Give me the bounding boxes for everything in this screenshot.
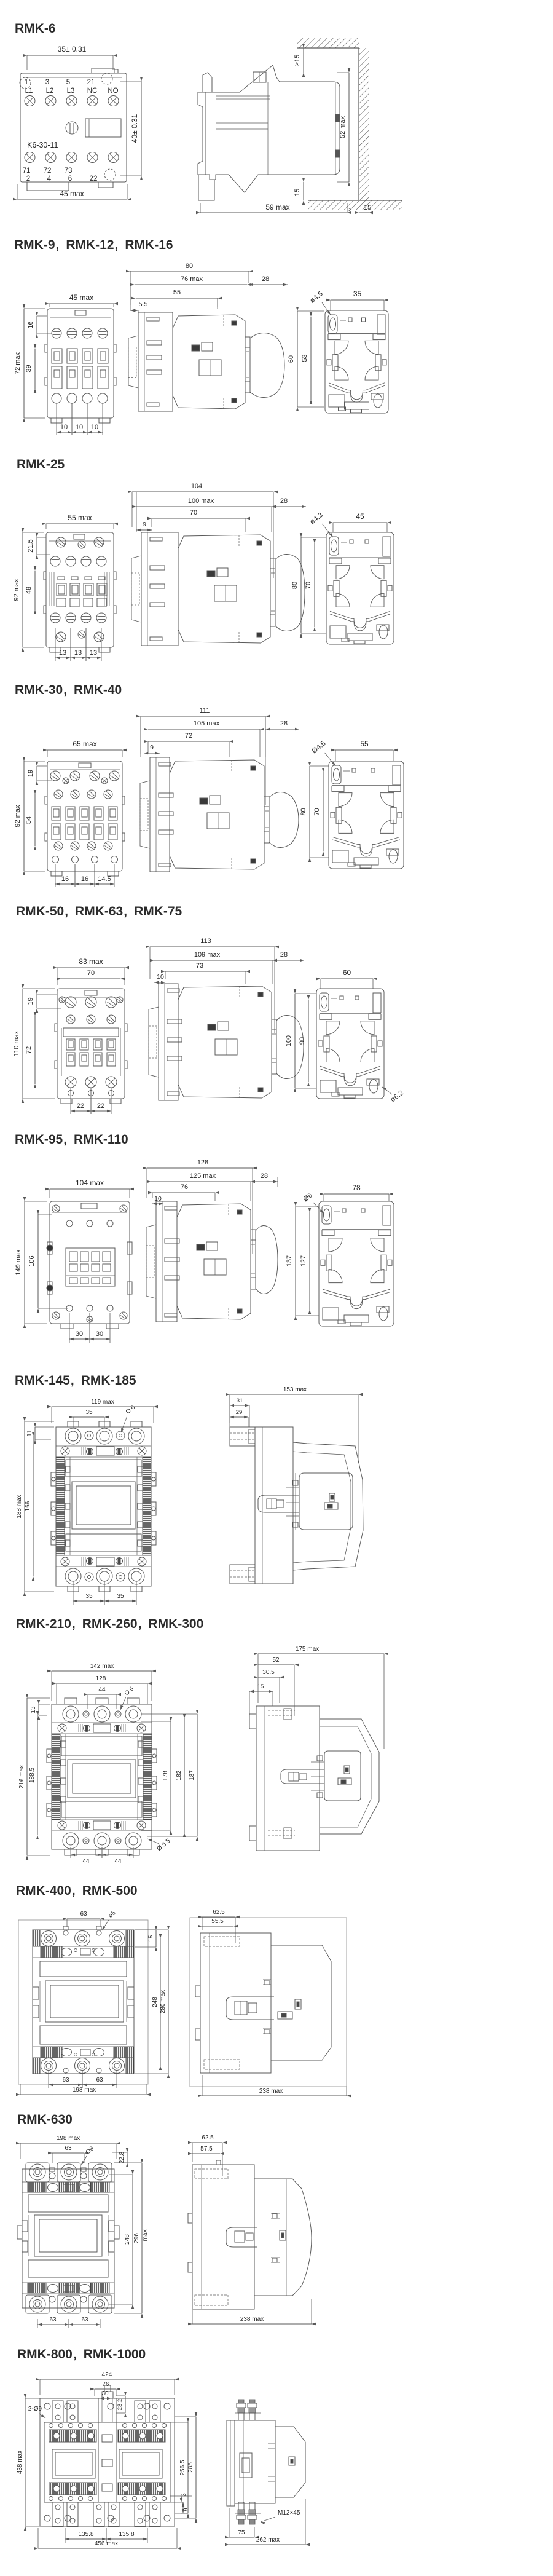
svg-text:10: 10 — [76, 424, 83, 431]
svg-text:35: 35 — [117, 1593, 124, 1600]
svg-text:40± 0.31: 40± 0.31 — [130, 114, 139, 143]
svg-text:21.5: 21.5 — [27, 539, 34, 552]
svg-text:106: 106 — [28, 1255, 36, 1266]
svg-text:153 max: 153 max — [283, 1386, 307, 1393]
svg-text:45 max: 45 max — [69, 293, 93, 302]
svg-text:19: 19 — [27, 997, 34, 1005]
svg-text:100: 100 — [285, 1035, 292, 1046]
svg-text:44: 44 — [98, 1686, 106, 1693]
svg-text:52 max: 52 max — [339, 116, 347, 138]
svg-text:4: 4 — [47, 175, 52, 183]
svg-text:≥15: ≥15 — [294, 55, 301, 66]
svg-text:28: 28 — [261, 1172, 268, 1180]
svg-text:65 max: 65 max — [73, 740, 96, 748]
svg-text:78: 78 — [352, 1183, 361, 1192]
svg-text:28: 28 — [262, 275, 269, 283]
svg-text:456 max: 456 max — [95, 2540, 118, 2547]
svg-text:216 max: 216 max — [18, 1765, 25, 1788]
svg-text:30.5: 30.5 — [262, 1669, 275, 1676]
svg-text:83 max: 83 max — [79, 957, 103, 966]
svg-text:6: 6 — [68, 175, 72, 183]
svg-text:39: 39 — [25, 365, 33, 372]
svg-text:RMK-25: RMK-25 — [17, 457, 65, 472]
svg-text:72: 72 — [185, 732, 192, 740]
svg-text:RMK-210,RMK-260,RMK-300: RMK-210,RMK-260,RMK-300 — [16, 1617, 203, 1631]
svg-text:175 max: 175 max — [296, 1646, 319, 1653]
svg-text:76: 76 — [102, 2381, 109, 2388]
svg-text:238 max: 238 max — [240, 2316, 264, 2323]
svg-text:110 max: 110 max — [13, 1030, 20, 1056]
svg-text:72 max: 72 max — [14, 352, 22, 374]
svg-text:48: 48 — [25, 587, 33, 594]
svg-text:238 max: 238 max — [259, 2088, 283, 2095]
svg-text:RMK-630: RMK-630 — [17, 2112, 73, 2127]
svg-text:22: 22 — [77, 1102, 84, 1110]
svg-text:92 max: 92 max — [13, 579, 20, 601]
svg-text:≥: ≥ — [349, 207, 352, 213]
svg-text:280 max: 280 max — [160, 1990, 167, 2013]
svg-text:10: 10 — [91, 424, 98, 431]
svg-text:10: 10 — [157, 973, 164, 981]
svg-text:182: 182 — [176, 1770, 182, 1780]
svg-text:76 max: 76 max — [181, 275, 203, 283]
svg-text:149 max: 149 max — [15, 1249, 22, 1276]
svg-text:55: 55 — [173, 289, 181, 296]
svg-text:13: 13 — [74, 649, 82, 657]
svg-text:188 max: 188 max — [16, 1495, 23, 1518]
svg-text:K6-30-11: K6-30-11 — [27, 141, 58, 149]
svg-text:15: 15 — [257, 1683, 264, 1690]
svg-text:70: 70 — [305, 582, 312, 589]
svg-text:73: 73 — [65, 167, 73, 175]
svg-text:L3: L3 — [67, 87, 75, 95]
svg-text:92 max: 92 max — [14, 805, 22, 828]
svg-text:296: 296 — [133, 2233, 140, 2243]
svg-text:14.5: 14.5 — [98, 875, 111, 883]
svg-text:71: 71 — [23, 167, 31, 175]
svg-text:15: 15 — [147, 1935, 154, 1942]
svg-text:35: 35 — [353, 290, 362, 298]
svg-text:75: 75 — [238, 2529, 245, 2536]
svg-text:29: 29 — [236, 1409, 243, 1416]
svg-text:198 max: 198 max — [73, 2087, 96, 2093]
svg-text:119 max: 119 max — [91, 1399, 114, 1405]
svg-text:1: 1 — [25, 79, 28, 86]
svg-text:60: 60 — [343, 968, 351, 977]
svg-text:128: 128 — [197, 1159, 208, 1166]
svg-text:60: 60 — [288, 355, 295, 363]
svg-text:55.5: 55.5 — [211, 1918, 224, 1925]
svg-text:max: max — [142, 2230, 149, 2242]
svg-text:44: 44 — [114, 1858, 122, 1865]
svg-text:128: 128 — [96, 1675, 106, 1682]
svg-text:166: 166 — [25, 1501, 31, 1511]
svg-text:44: 44 — [82, 1858, 90, 1865]
svg-text:63: 63 — [81, 2317, 88, 2323]
svg-text:256.5: 256.5 — [179, 2460, 186, 2475]
svg-text:19: 19 — [27, 770, 34, 777]
svg-text:135.8: 135.8 — [78, 2531, 93, 2538]
svg-text:31: 31 — [237, 1397, 243, 1404]
svg-text:22: 22 — [90, 175, 98, 183]
svg-text:63: 63 — [80, 1911, 87, 1918]
svg-text:62.5: 62.5 — [213, 1909, 225, 1916]
svg-text:70: 70 — [190, 509, 197, 516]
svg-text:438 max: 438 max — [17, 2451, 23, 2474]
svg-text:135.8: 135.8 — [119, 2531, 134, 2538]
svg-text:22.8: 22.8 — [119, 2151, 125, 2163]
svg-text:28: 28 — [280, 720, 288, 727]
svg-text:80: 80 — [291, 582, 299, 589]
svg-text:M12×45: M12×45 — [278, 2510, 300, 2516]
svg-text:10: 10 — [60, 424, 68, 431]
svg-text:63: 63 — [96, 2077, 103, 2084]
svg-text:10: 10 — [154, 1195, 162, 1203]
svg-text:111: 111 — [200, 707, 210, 714]
svg-text:70: 70 — [313, 808, 321, 815]
svg-text:125 max: 125 max — [190, 1172, 216, 1180]
svg-text:100 max: 100 max — [188, 497, 214, 505]
svg-text:104: 104 — [191, 483, 202, 490]
svg-text:15: 15 — [294, 189, 301, 196]
svg-text:63: 63 — [65, 2145, 72, 2152]
svg-text:16: 16 — [61, 875, 69, 883]
svg-text:30: 30 — [101, 2390, 109, 2397]
svg-text:16: 16 — [27, 321, 34, 328]
svg-text:13: 13 — [59, 649, 66, 657]
svg-text:11: 11 — [26, 1430, 33, 1437]
svg-text:53: 53 — [301, 354, 308, 362]
svg-text:13: 13 — [30, 1706, 37, 1713]
svg-text:105 max: 105 max — [194, 720, 220, 727]
svg-text:3: 3 — [45, 79, 49, 86]
svg-text:248: 248 — [124, 2234, 131, 2245]
svg-text:NO: NO — [108, 87, 118, 95]
svg-text:62.5: 62.5 — [202, 2135, 214, 2141]
svg-text:72: 72 — [25, 1046, 33, 1054]
svg-text:188.5: 188.5 — [29, 1768, 36, 1783]
svg-text:13: 13 — [90, 649, 97, 657]
svg-text:63: 63 — [49, 2317, 57, 2323]
svg-text:RMK-6: RMK-6 — [15, 22, 56, 36]
svg-text:28: 28 — [280, 951, 288, 958]
svg-text:285: 285 — [187, 2462, 194, 2473]
svg-text:73: 73 — [196, 962, 203, 970]
svg-text:2-Ø9: 2-Ø9 — [28, 2406, 42, 2412]
svg-text:127: 127 — [300, 1255, 307, 1266]
svg-text:35: 35 — [85, 1409, 93, 1416]
svg-text:45 max: 45 max — [60, 189, 84, 198]
svg-text:9: 9 — [150, 744, 154, 751]
svg-text:16: 16 — [81, 875, 88, 883]
svg-text:57.5: 57.5 — [200, 2146, 213, 2152]
svg-text:9: 9 — [182, 2508, 189, 2511]
svg-text:137: 137 — [286, 1255, 293, 1266]
svg-text:3: 3 — [181, 2493, 187, 2496]
svg-text:80: 80 — [186, 263, 193, 270]
svg-text:187: 187 — [189, 1770, 195, 1780]
svg-text:142 max: 142 max — [90, 1663, 114, 1670]
svg-text:59 max: 59 max — [265, 203, 289, 211]
svg-text:178: 178 — [162, 1771, 169, 1781]
svg-text:104 max: 104 max — [76, 1179, 104, 1187]
svg-text:63: 63 — [62, 2077, 69, 2084]
svg-text:424: 424 — [102, 2371, 112, 2378]
svg-text:15: 15 — [364, 204, 371, 211]
svg-text:35± 0.31: 35± 0.31 — [58, 45, 87, 53]
svg-text:30: 30 — [96, 1330, 103, 1338]
svg-text:28: 28 — [280, 497, 288, 505]
svg-text:52: 52 — [272, 1657, 280, 1664]
svg-text:23.2: 23.2 — [117, 2399, 124, 2411]
svg-text:109 max: 109 max — [194, 951, 221, 958]
svg-text:54: 54 — [25, 816, 33, 824]
svg-text:NC: NC — [87, 87, 98, 95]
svg-text:70: 70 — [87, 970, 95, 977]
svg-text:RMK-9,RMK-12,RMK-16: RMK-9,RMK-12,RMK-16 — [14, 238, 173, 252]
svg-text:113: 113 — [200, 938, 211, 945]
svg-text:5: 5 — [66, 79, 70, 86]
svg-text:21: 21 — [87, 79, 95, 86]
svg-text:35: 35 — [85, 1593, 93, 1600]
svg-text:248: 248 — [152, 1997, 159, 2007]
svg-text:RMK-50,RMK-63,RMK-75: RMK-50,RMK-63,RMK-75 — [16, 904, 182, 919]
svg-text:45: 45 — [356, 512, 364, 521]
svg-text:L2: L2 — [46, 87, 54, 95]
svg-text:9: 9 — [143, 521, 146, 528]
svg-text:55 max: 55 max — [68, 513, 92, 522]
svg-text:262 max: 262 max — [256, 2537, 280, 2543]
svg-text:2: 2 — [26, 175, 30, 183]
svg-text:30: 30 — [76, 1330, 83, 1338]
svg-text:80: 80 — [300, 808, 307, 815]
svg-text:198 max: 198 max — [57, 2135, 80, 2142]
svg-text:5.5: 5.5 — [139, 301, 148, 308]
svg-text:22: 22 — [97, 1102, 104, 1110]
svg-text:55: 55 — [360, 740, 369, 748]
svg-text:72: 72 — [44, 167, 52, 175]
svg-text:90: 90 — [299, 1037, 306, 1045]
svg-text:76: 76 — [181, 1183, 188, 1191]
